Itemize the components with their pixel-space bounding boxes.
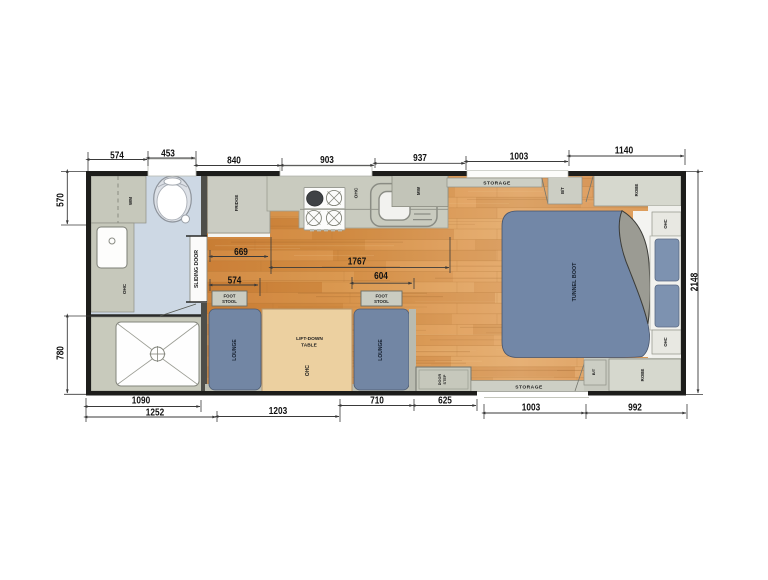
svg-text:WM: WM: [128, 197, 133, 205]
svg-text:OHC: OHC: [663, 337, 668, 346]
svg-text:1003: 1003: [510, 151, 529, 162]
svg-text:STEP: STEP: [443, 374, 447, 384]
svg-text:LOUNGE: LOUNGE: [378, 339, 384, 361]
svg-text:780: 780: [56, 346, 67, 360]
svg-text:1203: 1203: [269, 406, 288, 417]
svg-text:992: 992: [628, 403, 642, 414]
svg-text:OHC: OHC: [305, 365, 311, 377]
svg-text:570: 570: [56, 193, 67, 207]
svg-text:1003: 1003: [522, 403, 541, 414]
svg-text:STOOL: STOOL: [374, 299, 389, 304]
svg-text:FOOT: FOOT: [224, 294, 236, 299]
svg-text:625: 625: [438, 396, 452, 407]
svg-text:DOOR: DOOR: [438, 374, 442, 386]
svg-text:840: 840: [227, 155, 241, 166]
svg-text:1090: 1090: [132, 396, 151, 407]
svg-text:ROBE: ROBE: [640, 369, 645, 382]
svg-text:TUNNEL BOOT: TUNNEL BOOT: [572, 262, 578, 302]
svg-text:OHC: OHC: [663, 219, 668, 228]
svg-text:2148: 2148: [690, 272, 701, 291]
svg-text:SLIDING DOOR: SLIDING DOOR: [194, 250, 200, 288]
svg-text:FOOT: FOOT: [376, 294, 388, 299]
svg-text:LIFT-DOWN: LIFT-DOWN: [296, 336, 323, 342]
svg-text:OHC: OHC: [354, 187, 360, 198]
svg-text:604: 604: [374, 271, 388, 282]
svg-text:OHC: OHC: [122, 283, 127, 294]
svg-text:STORAGE: STORAGE: [483, 181, 511, 187]
svg-text:MW: MW: [416, 186, 421, 195]
svg-text:LOUNGE: LOUNGE: [232, 339, 238, 361]
svg-text:TABLE: TABLE: [301, 342, 317, 348]
svg-text:937: 937: [413, 153, 427, 164]
svg-text:710: 710: [370, 396, 384, 407]
svg-text:ROBE: ROBE: [634, 184, 639, 197]
svg-text:1140: 1140: [615, 145, 634, 156]
svg-text:FRIDGE: FRIDGE: [234, 195, 239, 212]
svg-text:903: 903: [320, 155, 334, 166]
svg-text:STORAGE: STORAGE: [515, 384, 543, 390]
svg-text:1767: 1767: [348, 257, 367, 268]
svg-text:B/T: B/T: [591, 368, 596, 375]
svg-text:STOOL: STOOL: [222, 299, 237, 304]
svg-text:B/T: B/T: [560, 187, 565, 194]
